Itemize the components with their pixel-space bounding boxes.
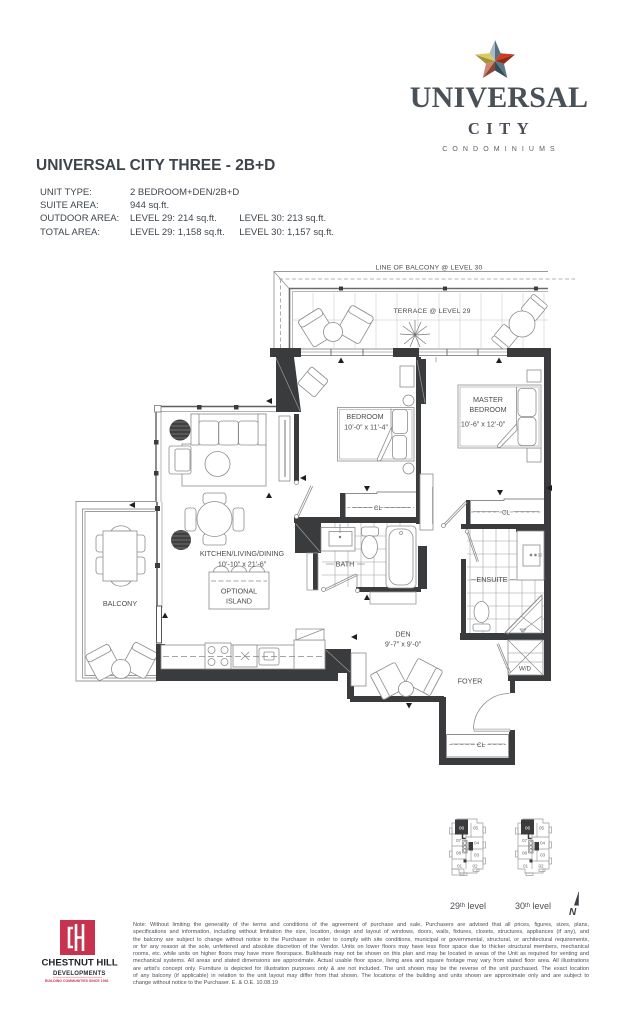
svg-text:9’-7” x 9’-0”: 9’-7” x 9’-0” <box>385 640 422 649</box>
svg-text:BUILDING COMMUNITIES SINCE 198: BUILDING COMMUNITIES SINCE 1981 <box>45 979 109 983</box>
svg-text:10’-10” x 21’-6”: 10’-10” x 21’-6” <box>218 560 267 569</box>
svg-text:CL: CL <box>477 742 485 749</box>
svg-text:10’-6” x 12’-0”: 10’-6” x 12’-0” <box>461 420 506 429</box>
svg-text:BATH: BATH <box>336 560 355 569</box>
svg-text:BEDROOM: BEDROOM <box>469 405 506 414</box>
svg-text:N: N <box>569 907 577 918</box>
svg-text:BEDROOM: BEDROOM <box>346 412 383 421</box>
svg-text:CL: CL <box>502 510 510 517</box>
svg-text:OPTIONAL: OPTIONAL <box>221 587 257 596</box>
svg-text:CL: CL <box>374 505 382 512</box>
svg-text:ISLAND: ISLAND <box>226 597 252 606</box>
svg-text:LINE OF BALCONY @ LEVEL 30: LINE OF BALCONY @ LEVEL 30 <box>376 265 483 272</box>
svg-text:CHESTNUT HILL: CHESTNUT HILL <box>42 958 118 969</box>
svg-text:DEN: DEN <box>395 630 410 639</box>
svg-text:W/D: W/D <box>519 666 532 673</box>
svg-text:FOYER: FOYER <box>458 677 483 686</box>
svg-text:KITCHEN/LIVING/DINING: KITCHEN/LIVING/DINING <box>200 549 285 558</box>
svg-text:BALCONY: BALCONY <box>103 599 138 608</box>
svg-text:MASTER: MASTER <box>473 395 503 404</box>
svg-text:ENSUITE: ENSUITE <box>476 575 507 584</box>
svg-text:DEVELOPMENTS: DEVELOPMENTS <box>53 971 106 977</box>
svg-text:TERRACE @ LEVEL 29: TERRACE @ LEVEL 29 <box>393 308 470 315</box>
svg-text:10’-0” x 11’-4”: 10’-0” x 11’-4” <box>344 423 388 432</box>
